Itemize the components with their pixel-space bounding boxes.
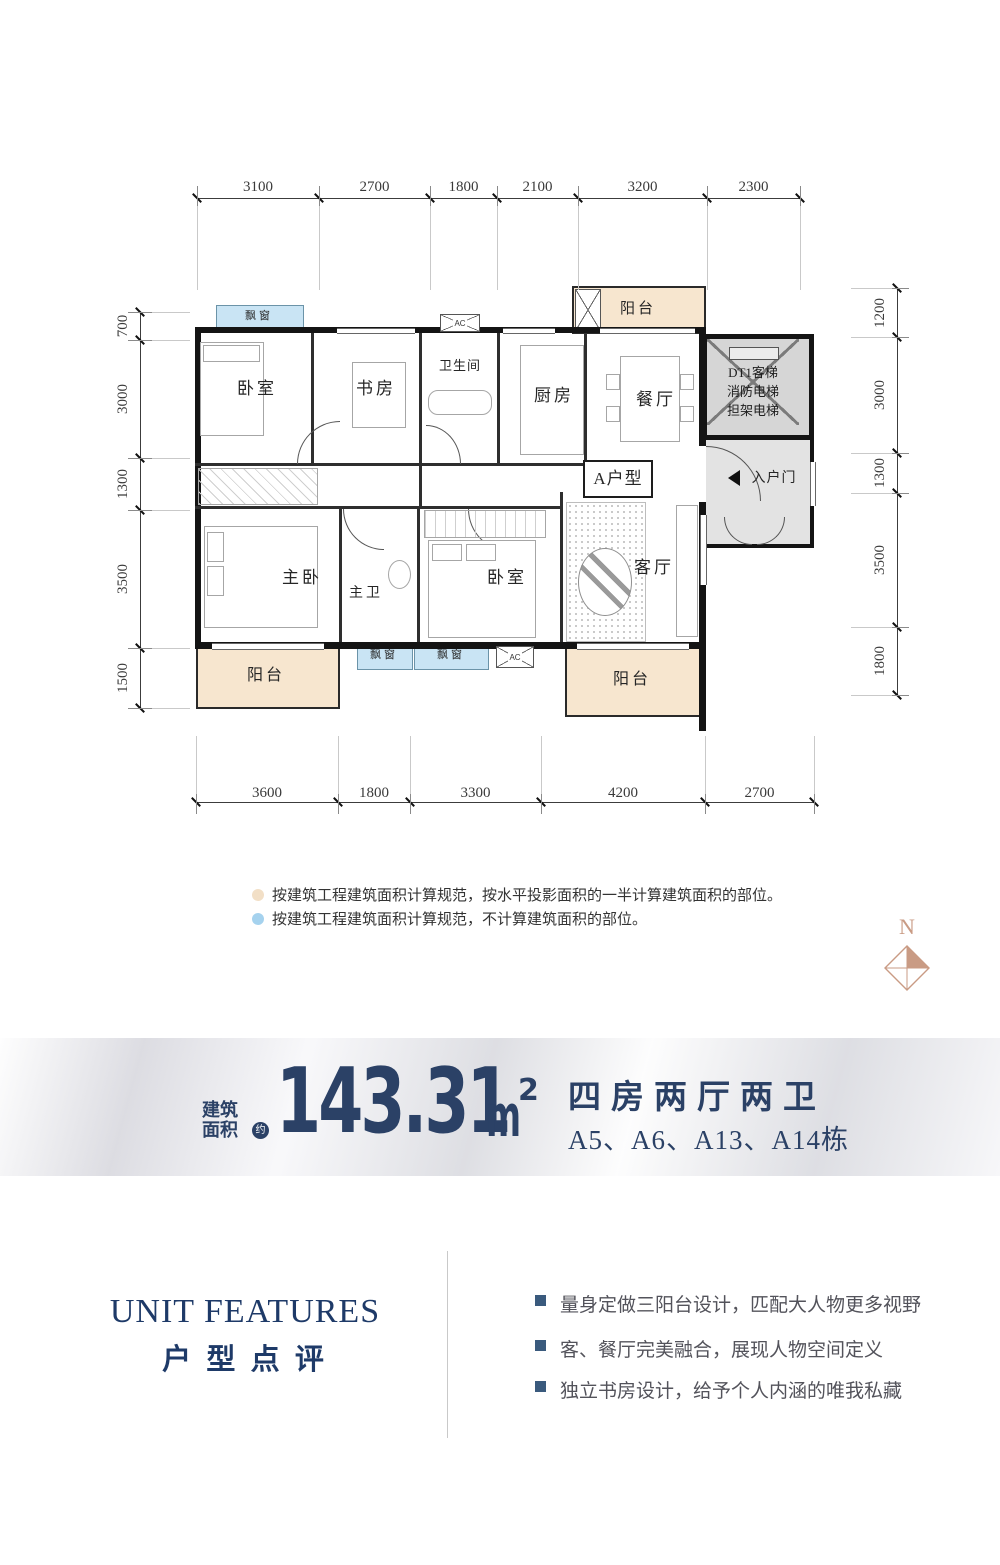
dimension-tick-cross [128, 340, 152, 341]
extension-line [319, 206, 320, 290]
features-title-cn: 户 型 点 评 [95, 1336, 395, 1378]
area-unit: m [486, 1087, 521, 1145]
dimension-line [196, 802, 814, 803]
dimension-label: 3100 [218, 179, 298, 195]
extension-line [152, 312, 190, 313]
extension-line [800, 206, 801, 290]
approx-badge: 约 [252, 1122, 269, 1139]
buildings-text: A5、A6、A13、A14栋 [568, 1118, 849, 1157]
compass: N [880, 914, 934, 1000]
extension-line [152, 458, 190, 459]
area-value: 143.31 [276, 1057, 509, 1147]
legend-item-half-area: 按建筑工程建筑面积计算规范，按水平投影面积的一半计算建筑面积的部位。 [252, 884, 782, 905]
feature-item: 客、餐厅完美融合，展现人物空间定义 [535, 1335, 965, 1362]
dimension-label: 1500 [115, 643, 131, 713]
dimension-label: 2100 [498, 179, 578, 195]
extension-line [197, 206, 198, 290]
dimension-label: 3300 [436, 785, 516, 801]
extension-line [196, 736, 197, 794]
dimension-label: 2300 [714, 179, 794, 195]
dimension-label: 3000 [115, 364, 131, 434]
dimension-label: 1800 [334, 785, 414, 801]
dimension-label: 3500 [872, 525, 888, 595]
extension-line [814, 736, 815, 794]
legend-text-half-area: 按建筑工程建筑面积计算规范，按水平投影面积的一半计算建筑面积的部位。 [272, 884, 782, 905]
feature-bullet-icon [535, 1295, 546, 1306]
features-title-en: UNIT FEATURES [95, 1293, 395, 1331]
area-label-line1: 建筑 [202, 1100, 238, 1120]
dimension-tick-cross [128, 312, 152, 313]
dimension-label: 700 [115, 291, 131, 361]
dimension-label: 1800 [872, 626, 888, 696]
legend-swatch-excluded [252, 913, 264, 925]
dimension-tick-cross [128, 458, 152, 459]
compass-north-label: N [880, 914, 934, 940]
dimension-label: 3200 [603, 179, 683, 195]
layout-text: 四房两厅两卫 [568, 1070, 826, 1118]
area-banner: 建筑 面积 约 143.31 m 2 四房两厅两卫 A5、A6、A13、A14栋 [0, 1038, 1000, 1176]
extension-line [430, 206, 431, 290]
area-label-line2: 面积 [202, 1120, 238, 1140]
dimension-label: 3500 [115, 544, 131, 614]
dimension-label: 1300 [872, 438, 888, 508]
dimension-tick-cross [128, 708, 152, 709]
feature-text: 客、餐厅完美融合，展现人物空间定义 [560, 1335, 883, 1362]
dimension-label: 1800 [424, 179, 504, 195]
feature-text: 量身定做三阳台设计，匹配大人物更多视野 [560, 1290, 921, 1317]
feature-bullet-icon [535, 1381, 546, 1392]
area-label: 建筑 面积 [202, 1100, 238, 1140]
extension-line [152, 648, 190, 649]
compass-rose-icon [883, 944, 931, 992]
feature-item: 量身定做三阳台设计，匹配大人物更多视野 [535, 1290, 965, 1317]
extension-line [152, 340, 190, 341]
legend-swatch-half-area [252, 889, 264, 901]
dimension-chains: 3100270018002100320023003600180033004200… [0, 0, 1000, 840]
dimension-label: 3600 [227, 785, 307, 801]
extension-line [152, 708, 190, 709]
dimension-label: 1200 [872, 278, 888, 348]
extension-line [578, 206, 579, 290]
feature-text: 独立书房设计，给予个人内涵的唯我私藏 [560, 1376, 902, 1403]
extension-line [497, 206, 498, 290]
extension-line [541, 736, 542, 794]
feature-bullet-icon [535, 1340, 546, 1351]
dimension-label: 3000 [872, 360, 888, 430]
dimension-label: 1300 [115, 449, 131, 519]
dimension-label: 4200 [583, 785, 663, 801]
dimension-tick-cross [128, 510, 152, 511]
dimension-tick-cross [128, 648, 152, 649]
dimension-label: 2700 [335, 179, 415, 195]
floor-plan: DT1客梯 消防电梯 担架电梯 AC AC A户型 [0, 0, 1000, 840]
legend-text-excluded: 按建筑工程建筑面积计算规范，不计算建筑面积的部位。 [272, 908, 647, 929]
dimension-label: 2700 [720, 785, 800, 801]
extension-line [707, 206, 708, 290]
features-divider [447, 1251, 448, 1438]
floorplan-page: DT1客梯 消防电梯 担架电梯 AC AC A户型 [0, 0, 1000, 1565]
legend-item-excluded: 按建筑工程建筑面积计算规范，不计算建筑面积的部位。 [252, 908, 647, 929]
area-sup: 2 [518, 1076, 539, 1106]
feature-item: 独立书房设计，给予个人内涵的唯我私藏 [535, 1376, 965, 1403]
extension-line [705, 736, 706, 794]
extension-line [152, 510, 190, 511]
